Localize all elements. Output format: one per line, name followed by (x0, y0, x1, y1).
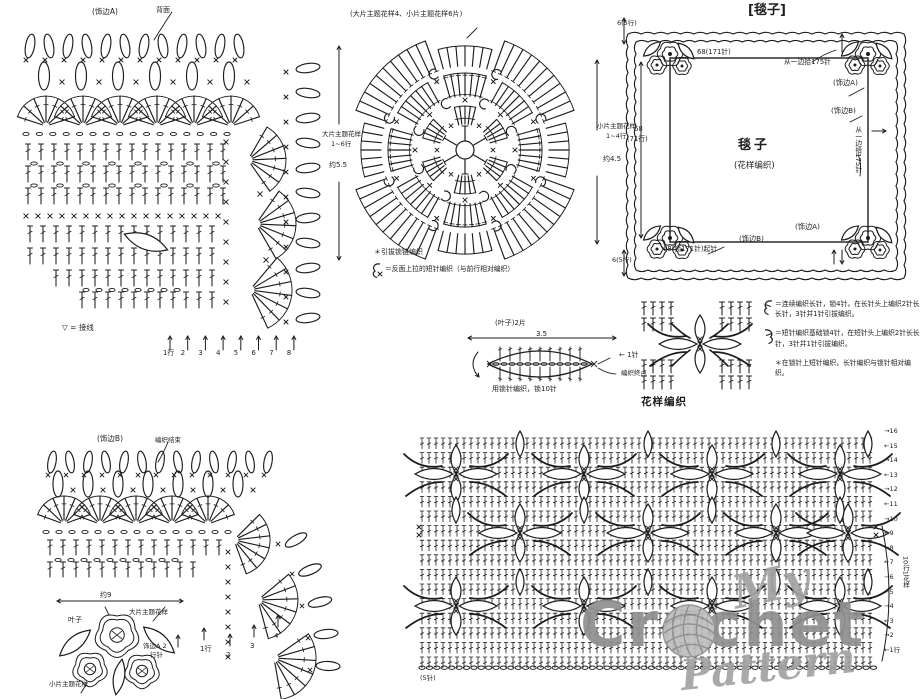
edging-a-row-number: 8 (287, 350, 291, 358)
edging-a-row-number: 4 (216, 350, 220, 358)
motif-note-symbol: ＝反面上拉的短针编织（与前行相对编织） (385, 266, 514, 274)
pattern-row-label: →2 (884, 632, 894, 639)
pattern-row-label: ←3 (884, 618, 894, 625)
edging-b-pickup-2: 行针 (150, 652, 163, 659)
cluster-b-icon (762, 329, 775, 348)
leaf-title: (叶子)2片 (495, 319, 526, 327)
cluster-small-flower-label: 小片主题花样 (49, 681, 88, 688)
pattern-row-label: →8 (884, 545, 894, 552)
edging-a-row-number: 2 (181, 350, 185, 358)
edging-b-title: (饰边B) (97, 435, 123, 444)
legend-text: ＝连续编织长针，锁4针，在长针头上编织2针长长针，3针并1针引拔编织。 (775, 299, 920, 319)
motif-left-label-1: 大片主题花样 (322, 131, 361, 138)
blanket-center-sub: (花样编织) (734, 162, 775, 172)
chart-repeat-label: 10行1花样 (901, 556, 908, 636)
pattern-row-label: ←11 (884, 501, 898, 508)
pattern-row-label: →12 (884, 486, 898, 493)
edging-a-row-number: 3 (198, 350, 202, 358)
blanket-left-count-1: 68 (634, 126, 643, 134)
pattern-row-label: ←13 (884, 472, 898, 479)
blanket-cast-on: 68(锁171针)起针 (663, 246, 717, 254)
legend-text: ＝短针编织基础锁4针，在短针头上编织2针长长针，3针并1针引拔编织。 (775, 328, 920, 348)
leaf-tip-label: ← 1针 (619, 351, 639, 359)
chart-base-label: (5针) (420, 675, 436, 682)
leaf-end-label: 编织终点 (621, 370, 647, 377)
blanket-corner-bottom: 6(5行) (612, 257, 632, 264)
motif-left-size: 约5.5 (329, 161, 347, 169)
leaf-width: 3.5 (536, 330, 547, 338)
cluster-width-label: 约9 (100, 591, 111, 599)
blanket-pickup-right: 从一边拾175针 (853, 126, 861, 206)
blanket-left-count-2: (71行) (627, 136, 648, 144)
cluster-a-icon (762, 300, 775, 319)
stitch-legend: ＝连续编织长针，锁4针，在长针头上编织2针长长针，3针并1针引拔编织。 ＝短针编… (762, 299, 920, 387)
motif-right-label-1: 小片主题花样 (597, 123, 636, 130)
pattern-repeat-chart (638, 296, 763, 396)
edging-b-end-label: 编织结束 (155, 437, 181, 444)
cluster-leaf-label: 叶子 (68, 616, 82, 624)
edging-b-row-number: 1行 (200, 645, 211, 653)
legend-text: ＊在锁针上短针编织，长针编织与锁针相对编织。 (775, 358, 920, 378)
motif-note-star: ＊引拔锁链编织 (374, 248, 423, 256)
blanket-title: [毯子] (748, 4, 786, 19)
blanket-edge-b-bottom: (饰边B) (739, 235, 764, 243)
motif-left-label-2: 1~6行 (331, 141, 351, 148)
pattern-row-label: ←7 (884, 559, 894, 566)
pattern-chart (414, 414, 922, 696)
blanket-top-count: 68(171针) (697, 49, 731, 57)
pattern-row-label: →10 (884, 516, 898, 523)
cluster-large-flower-label: 大片主题花样 (129, 609, 168, 616)
edging-a-row-number: 7 (269, 350, 273, 358)
legend-item: ＝连续编织长针，锁4针，在长针头上编织2针长长针，3针并1针引拔编织。 (762, 299, 920, 319)
motif-right-size: 约4.5 (603, 155, 621, 163)
blanket-corner-top: 6(5行) (617, 20, 637, 27)
motif-right-label-2: 1~4行 (606, 133, 626, 140)
edging-b-row-number: 2 (226, 651, 230, 659)
edging-b-row-number: 3 (250, 642, 254, 650)
blanket-edge-a-bottom: (饰边A) (795, 223, 820, 231)
edging-a-chart (4, 2, 336, 358)
blanket-edge-a: (饰边A) (833, 79, 858, 87)
flower-motif-chart (325, 4, 620, 292)
motif-title: (大片主题花样4、小片主题花样6片) (350, 10, 462, 18)
leaf-note: 用锁针编织，锁10针 (492, 385, 557, 393)
legend-item: ＝短针编织基础锁4针，在短针头上编织2针长长针，3针并1针引拔编织。 (762, 328, 920, 348)
edging-a-row-number: 1行 (163, 350, 174, 358)
edging-b-row-number: 4 (274, 632, 278, 640)
edging-a-row-number: 6 (252, 350, 256, 358)
blanket-edge-b: (饰边B) (831, 107, 856, 115)
blanket-pickup-top: 从一边拾175针 (784, 59, 831, 67)
blanket-center-label: 毯子 (738, 139, 770, 154)
pattern-repeat-label: 花样编织 (641, 396, 687, 408)
pattern-row-label: ←1行 (884, 647, 900, 654)
crochet-pattern-page: (饰边A) 背面 ▽ = 接线 (大片主题花样4、小片主题花样6片) 大片主题花… (0, 0, 922, 699)
edging-a-row-number: 5 (234, 350, 238, 358)
pattern-row-label: →6 (884, 574, 894, 581)
pattern-row-label: →14 (884, 457, 898, 464)
edging-b-pickup-1: 饰边A 2 (143, 643, 167, 650)
edging-a-thread-legend: ▽ = 接线 (62, 324, 94, 333)
pattern-row-label: →16 (884, 428, 898, 435)
pattern-row-label: ←5 (884, 589, 894, 596)
edging-a-title: (饰边A) (92, 8, 118, 17)
pattern-row-label: →4 (884, 603, 894, 610)
edging-a-back-label: 背面 (156, 6, 170, 14)
back-sc-symbol-icon (371, 263, 384, 278)
pattern-row-label: ←9 (884, 530, 894, 537)
pattern-row-label: ←15 (884, 443, 898, 450)
legend-item: ＊在锁针上短针编织，长针编织与锁针相对编织。 (762, 358, 920, 378)
